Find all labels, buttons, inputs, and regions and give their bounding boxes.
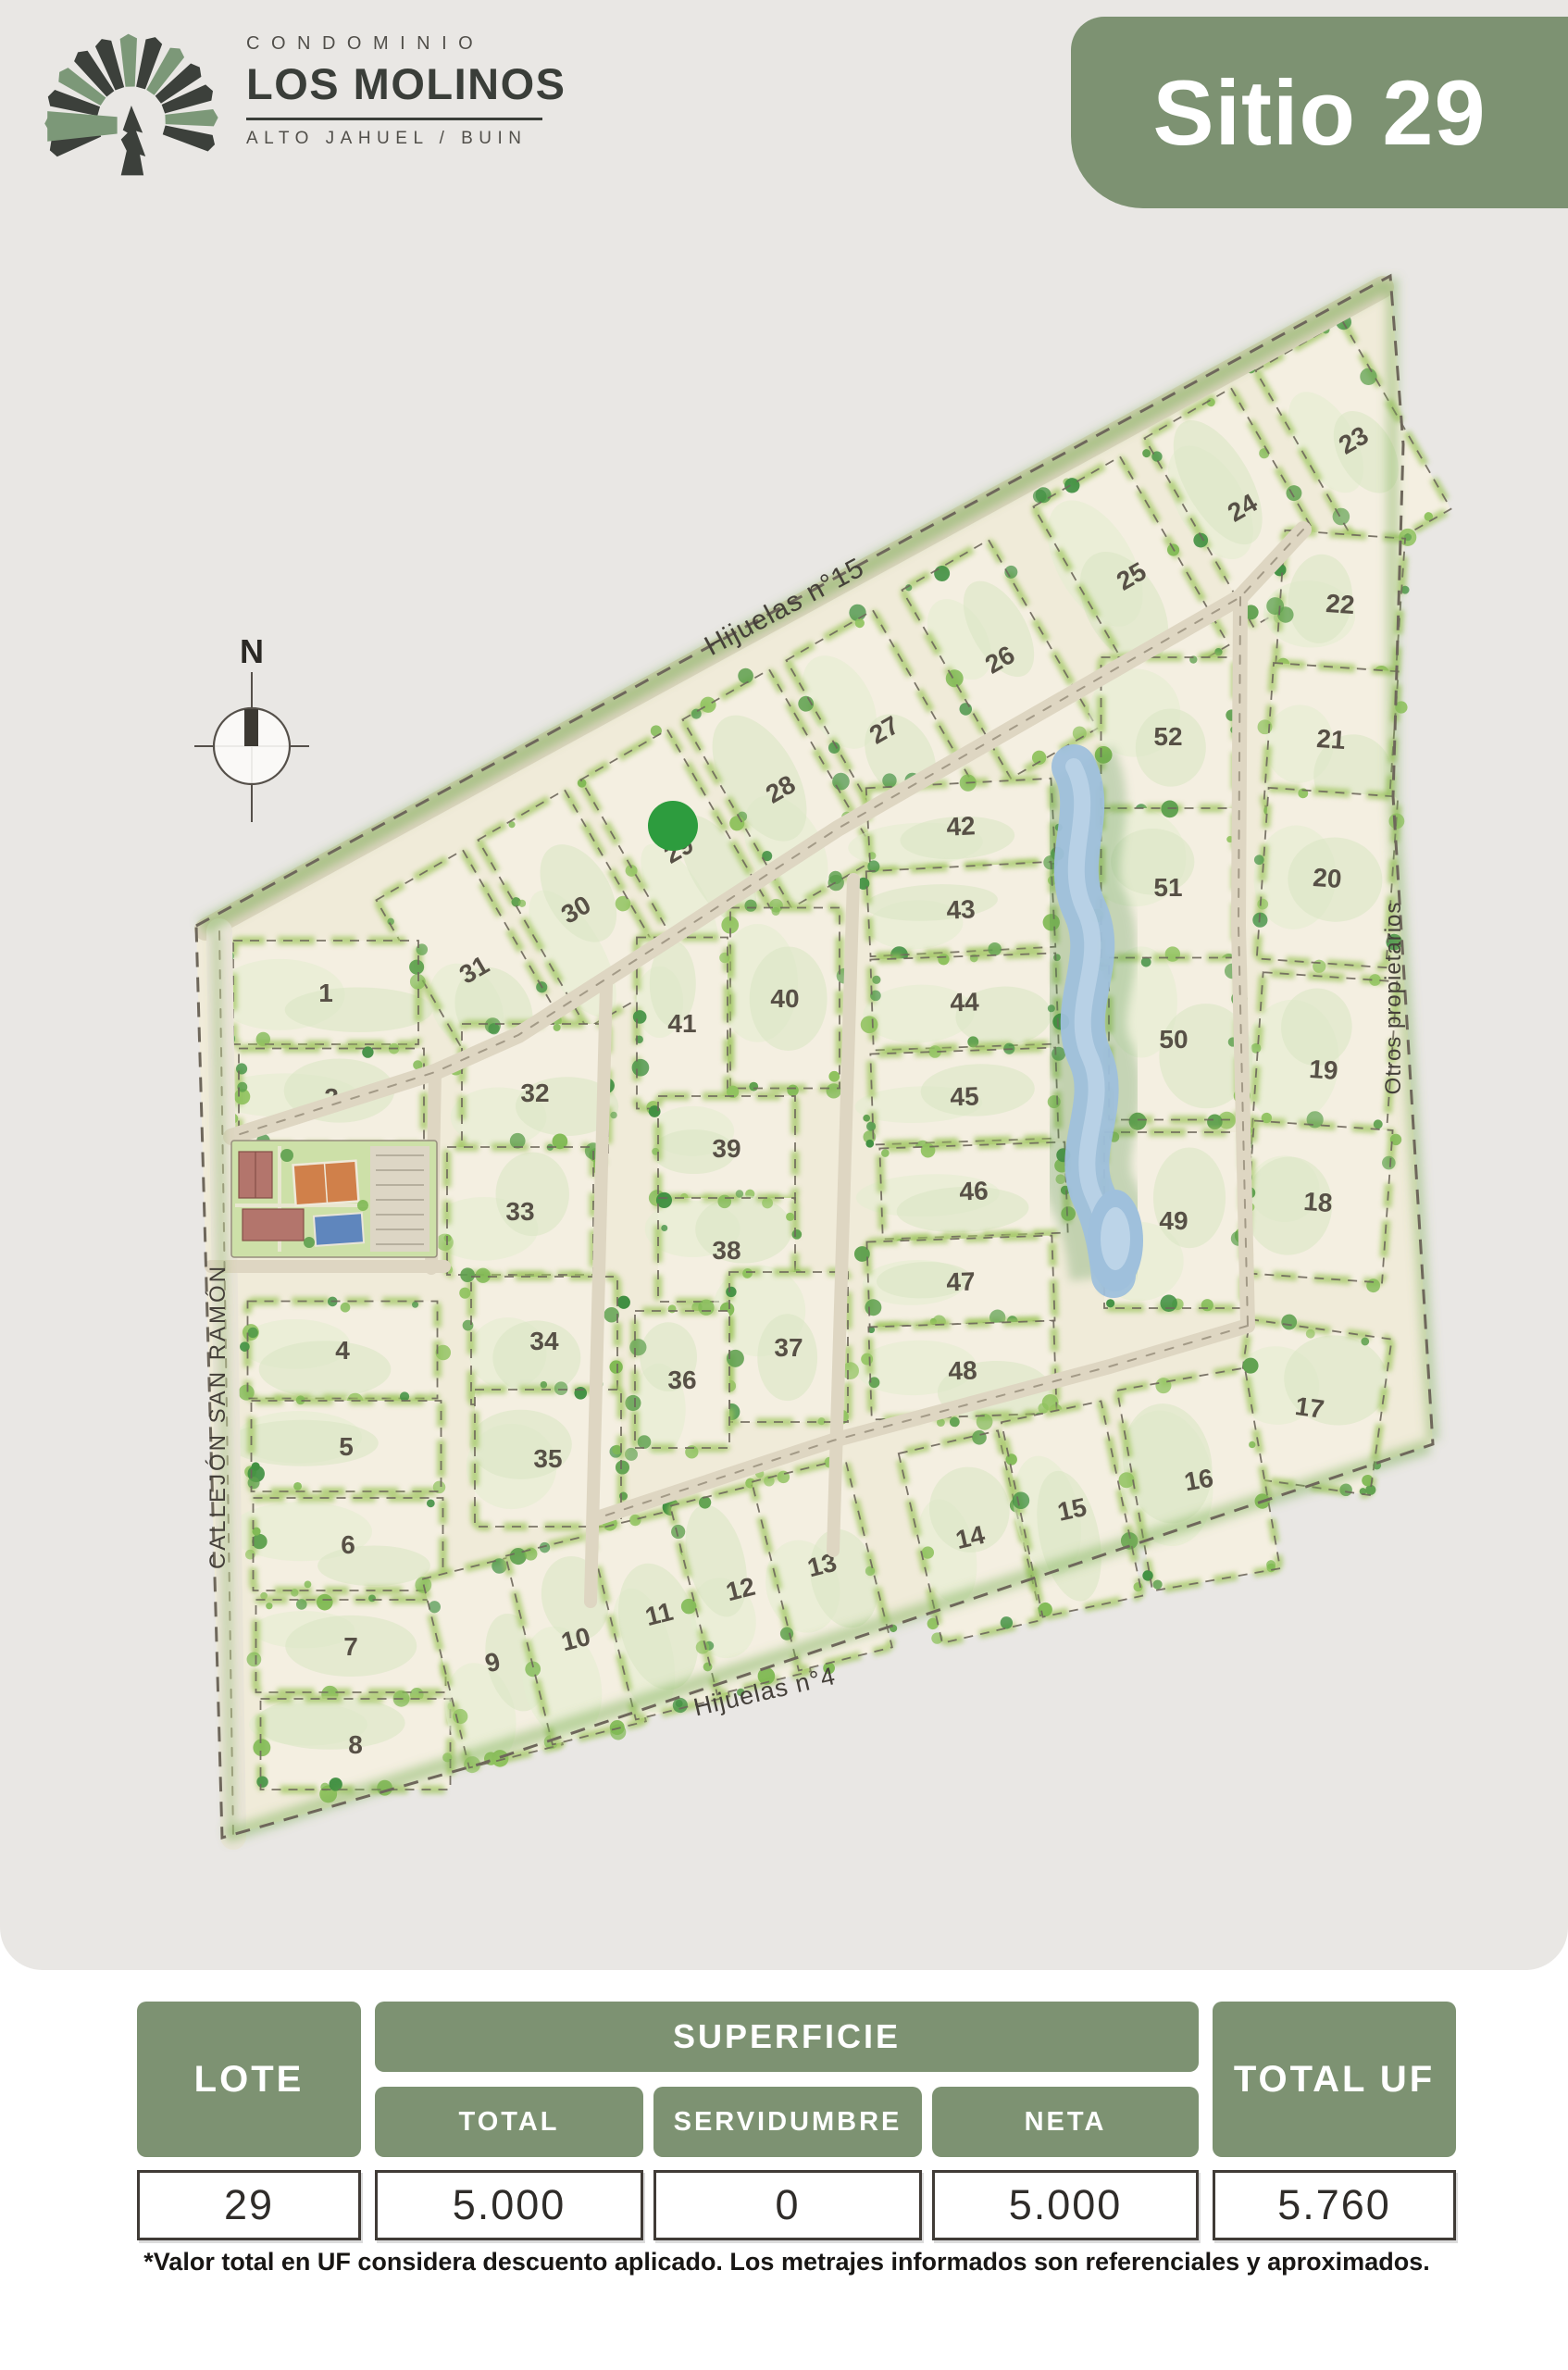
lot-number: 50 xyxy=(1159,1025,1188,1054)
lot-number: 5 xyxy=(339,1432,354,1461)
map-lot-44: 44 xyxy=(858,940,1070,1051)
lot-number: 20 xyxy=(1312,863,1342,893)
lot-number: 41 xyxy=(667,1009,696,1038)
site-badge: Sitio 29 xyxy=(1071,17,1568,208)
table-header-lote: LOTE xyxy=(137,2002,361,2157)
table-header-total-uf: TOTAL UF xyxy=(1213,2002,1456,2157)
lot-number: 39 xyxy=(712,1134,740,1163)
logo: CONDOMINIO LOS MOLINOS ALTO JAHUEL / BUI… xyxy=(41,7,566,206)
brand-top: CONDOMINIO xyxy=(246,33,566,55)
map-lot-39: 39 xyxy=(649,1086,795,1206)
brand-location: ALTO JAHUEL / BUIN xyxy=(246,129,566,149)
lot-number: 42 xyxy=(946,811,977,842)
facilities-area xyxy=(231,1141,437,1257)
map-lot-6: 6 xyxy=(230,1498,442,1600)
table-header-servidumbre: SERVIDUMBRE xyxy=(653,2087,922,2157)
brand-name: LOS MOLINOS xyxy=(246,58,566,109)
lot-number: 46 xyxy=(959,1176,989,1205)
lot-number: 32 xyxy=(520,1079,549,1107)
windmill-logo-icon xyxy=(41,7,231,206)
table-value-servidumbre: 0 xyxy=(653,2170,922,2240)
lot-number: 51 xyxy=(1153,873,1182,902)
map-lot-5: 5 xyxy=(228,1391,446,1493)
site-plan-map: 2324252627282930312221201918175251504942… xyxy=(0,222,1568,1981)
lot-number: 35 xyxy=(533,1444,562,1473)
brand-divider xyxy=(246,118,542,120)
table-header-neta: NETA xyxy=(932,2087,1199,2157)
table-header-superficie: SUPERFICIE xyxy=(375,2002,1199,2072)
lot-number: 1 xyxy=(318,979,333,1007)
lot-number: 18 xyxy=(1302,1187,1333,1217)
sport-court xyxy=(314,1213,364,1246)
lot-number: 36 xyxy=(667,1366,696,1394)
lot-number: 34 xyxy=(529,1327,559,1355)
lot-number: 49 xyxy=(1159,1206,1188,1235)
lot-number: 8 xyxy=(348,1730,363,1759)
map-lot-33: 33 xyxy=(429,1133,604,1283)
road-label-otros-propietarios: Otros propietarios xyxy=(1381,902,1406,1095)
lot-number: 33 xyxy=(505,1197,534,1226)
table-value-total: 5.000 xyxy=(375,2170,643,2240)
map-lot-8: 8 xyxy=(249,1690,458,1803)
lot-number: 43 xyxy=(946,894,977,925)
lot-number: 48 xyxy=(948,1355,977,1385)
parking-lot xyxy=(370,1146,429,1252)
lot-number: 47 xyxy=(946,1266,976,1296)
lot-number: 52 xyxy=(1153,722,1182,751)
lot-number: 19 xyxy=(1308,1054,1338,1085)
compass: N xyxy=(194,632,309,822)
service-building xyxy=(243,1209,304,1241)
table-header-total: TOTAL xyxy=(375,2087,643,2157)
lot-number: 16 xyxy=(1182,1464,1215,1497)
lot-number: 7 xyxy=(343,1632,358,1661)
lot-number: 21 xyxy=(1315,724,1346,755)
map-lot-36: 36 xyxy=(625,1300,744,1461)
compass-north-label: N xyxy=(240,632,264,670)
flyer-page: CONDOMINIO LOS MOLINOS ALTO JAHUEL / BUI… xyxy=(0,0,1568,2370)
map-lot-4: 4 xyxy=(239,1297,451,1410)
logo-text: CONDOMINIO LOS MOLINOS ALTO JAHUEL / BUI… xyxy=(246,33,566,149)
table-value-total-uf: 5.760 xyxy=(1213,2170,1456,2240)
lot-number: 15 xyxy=(1055,1492,1089,1527)
lot-number: 6 xyxy=(341,1530,355,1559)
lot-number: 40 xyxy=(770,984,799,1013)
map-lot-35: 35 xyxy=(467,1378,629,1527)
road-label-callejon-san-ramon: CALLEJÓN SAN RAMÓN xyxy=(205,1264,230,1569)
map-lot-40: 40 xyxy=(717,899,852,1099)
lot-number: 22 xyxy=(1325,589,1355,619)
map-lot-18: 18 xyxy=(1231,1106,1403,1294)
map-lot-43: 43 xyxy=(856,851,1063,966)
lot-number: 4 xyxy=(335,1336,350,1365)
footnote: *Valor total en UF considera descuento a… xyxy=(111,2248,1462,2276)
map-lot-7: 7 xyxy=(247,1594,454,1703)
lot-number: 44 xyxy=(950,987,980,1017)
table-value-lote: 29 xyxy=(137,2170,361,2240)
table-value-neta: 5.000 xyxy=(932,2170,1199,2240)
map-lot-1: 1 xyxy=(215,941,433,1046)
lot-number: 37 xyxy=(774,1333,803,1362)
selected-lot-marker xyxy=(648,801,698,851)
lot-number: 45 xyxy=(950,1081,979,1111)
lots-layer: 2324252627282930312221201918175251504942… xyxy=(212,309,1458,1803)
tennis-court xyxy=(293,1161,359,1206)
lot-number: 17 xyxy=(1293,1391,1325,1424)
map-lot-41: 41 xyxy=(632,938,730,1117)
lot-number: 38 xyxy=(712,1236,740,1265)
